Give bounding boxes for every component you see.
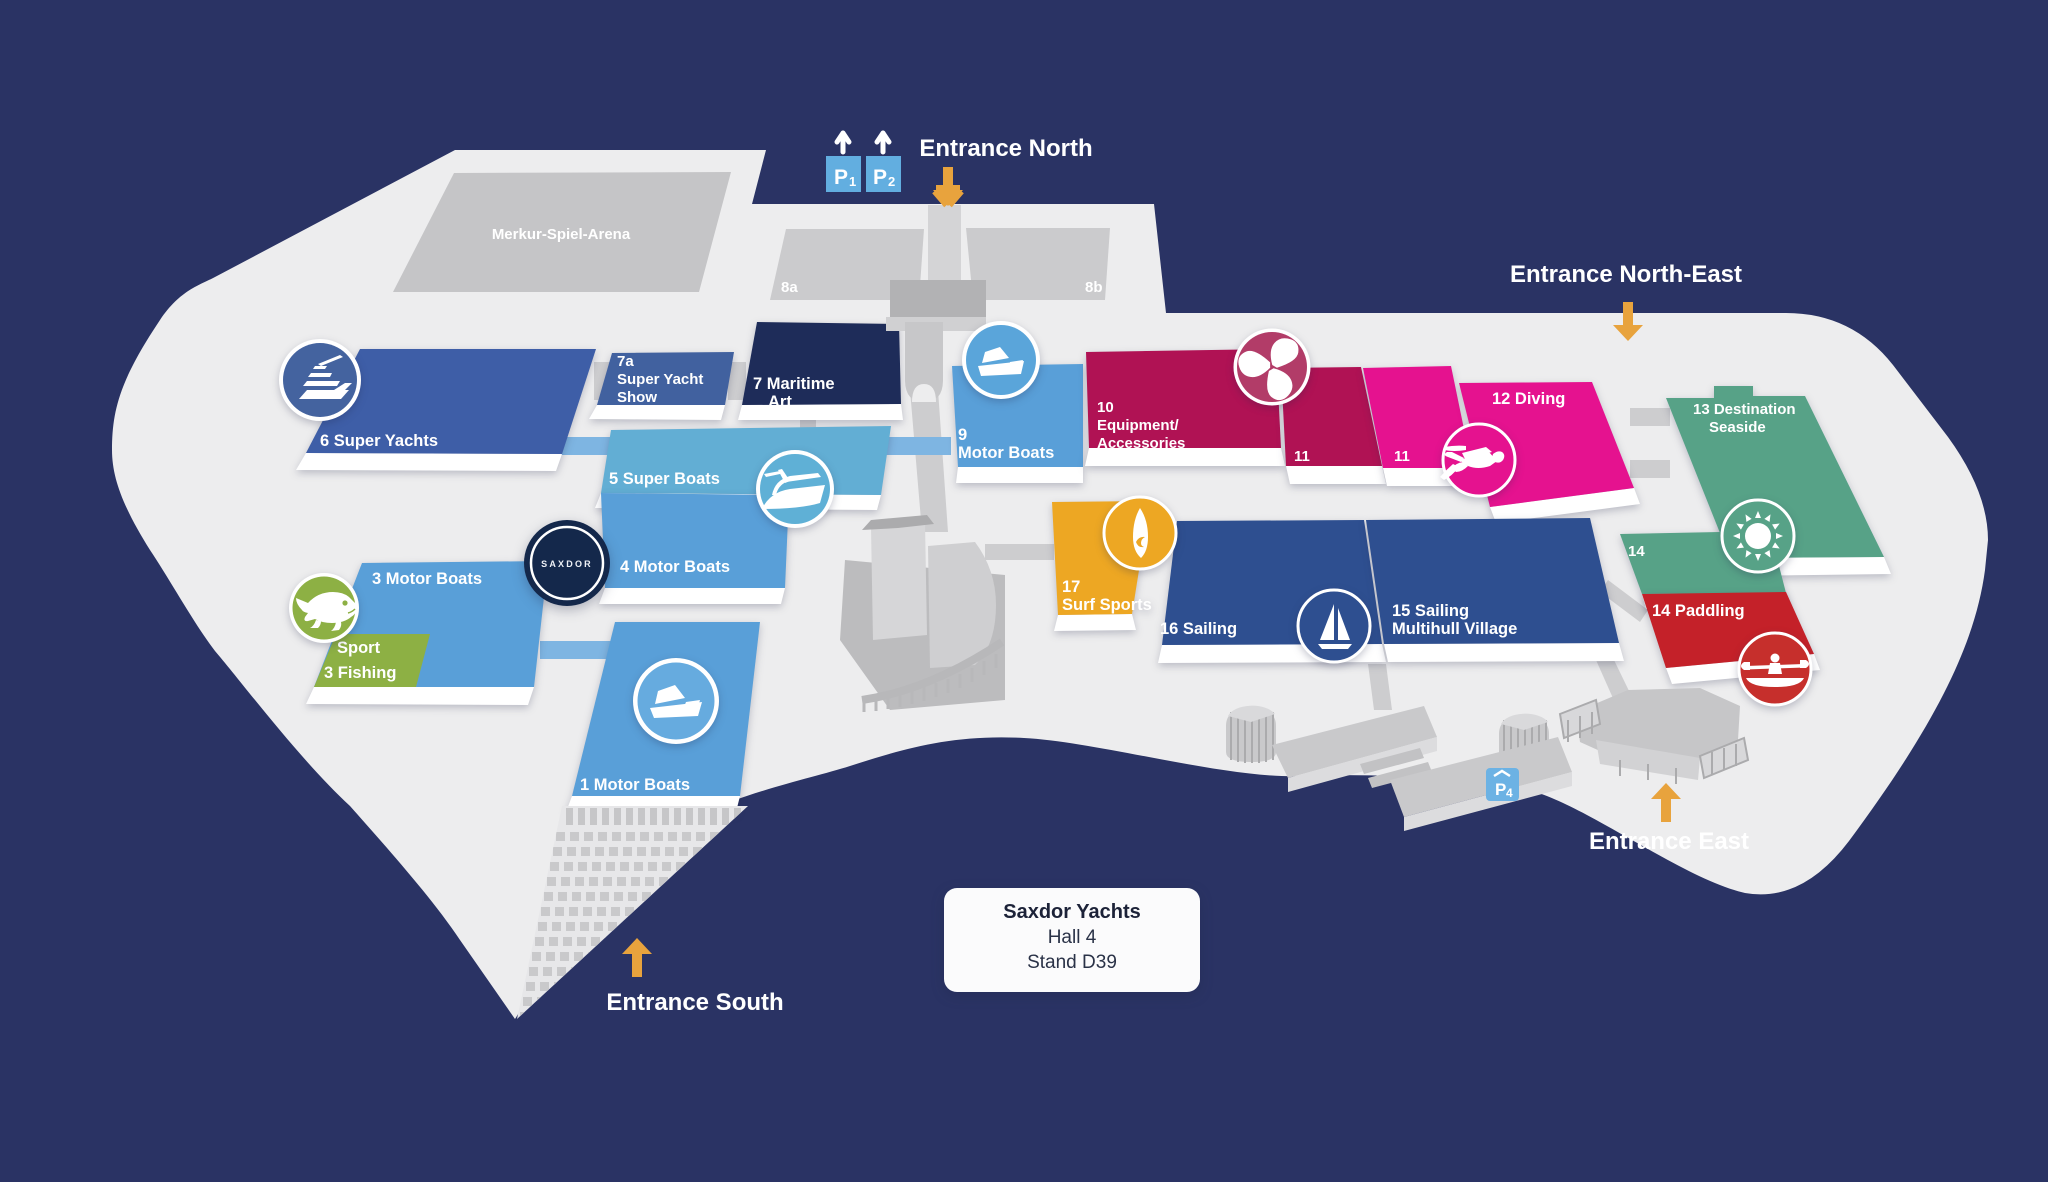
svg-text:1 Motor Boats: 1 Motor Boats <box>580 776 690 794</box>
svg-text:P: P <box>873 166 887 189</box>
svg-text:6 Super Yachts: 6 Super Yachts <box>320 432 438 450</box>
svg-text:7 Maritime: 7 Maritime <box>753 375 835 393</box>
svg-text:SAXDOR: SAXDOR <box>541 559 593 569</box>
svg-text:Entrance South: Entrance South <box>606 989 783 1016</box>
svg-text:8b: 8b <box>1085 279 1103 296</box>
svg-text:2: 2 <box>888 174 895 189</box>
svg-text:17: 17 <box>1062 578 1080 596</box>
svg-text:Entrance North-East: Entrance North-East <box>1510 261 1742 288</box>
svg-text:14: 14 <box>1628 543 1645 560</box>
svg-text:Hall 4: Hall 4 <box>1048 927 1097 948</box>
svg-text:11: 11 <box>1394 448 1410 465</box>
svg-text:Sport: Sport <box>337 639 381 657</box>
svg-text:Motor Boats: Motor Boats <box>958 444 1054 462</box>
svg-text:3 Motor Boats: 3 Motor Boats <box>372 570 482 588</box>
svg-text:Entrance North: Entrance North <box>919 135 1092 162</box>
svg-text:13 Destination: 13 Destination <box>1693 401 1796 418</box>
svg-text:7a: 7a <box>617 353 634 370</box>
svg-text:15 Sailing: 15 Sailing <box>1392 602 1469 620</box>
svg-text:9: 9 <box>958 426 967 444</box>
svg-text:Stand D39: Stand D39 <box>1027 952 1117 973</box>
svg-text:10: 10 <box>1097 399 1114 416</box>
svg-text:16 Sailing: 16 Sailing <box>1160 620 1237 638</box>
svg-text:Merkur-Spiel-Arena: Merkur-Spiel-Arena <box>492 226 631 243</box>
svg-text:11: 11 <box>1294 448 1310 465</box>
svg-text:14 Paddling: 14 Paddling <box>1652 602 1745 620</box>
svg-text:Multihull Village: Multihull Village <box>1392 620 1517 638</box>
svg-text:8a: 8a <box>781 279 798 296</box>
svg-text:Super Yacht: Super Yacht <box>617 371 703 388</box>
svg-text:P: P <box>1495 780 1506 799</box>
svg-text:Accessories: Accessories <box>1097 435 1185 452</box>
svg-text:P: P <box>834 166 848 189</box>
svg-text:Surf Sports: Surf Sports <box>1062 596 1152 614</box>
svg-text:Show: Show <box>617 389 657 406</box>
svg-text:1: 1 <box>849 174 856 189</box>
svg-text:Saxdor Yachts: Saxdor Yachts <box>1003 901 1140 923</box>
svg-text:4 Motor Boats: 4 Motor Boats <box>620 558 730 576</box>
svg-text:Entrance East: Entrance East <box>1589 828 1749 855</box>
svg-text:3 Fishing: 3 Fishing <box>324 664 396 682</box>
svg-text:Equipment/: Equipment/ <box>1097 417 1179 434</box>
svg-text:Seaside: Seaside <box>1709 419 1766 436</box>
svg-text:4: 4 <box>1506 786 1513 800</box>
svg-text:12 Diving: 12 Diving <box>1492 390 1565 408</box>
svg-text:5 Super Boats: 5 Super Boats <box>609 470 720 488</box>
svg-text:Art: Art <box>768 393 792 411</box>
